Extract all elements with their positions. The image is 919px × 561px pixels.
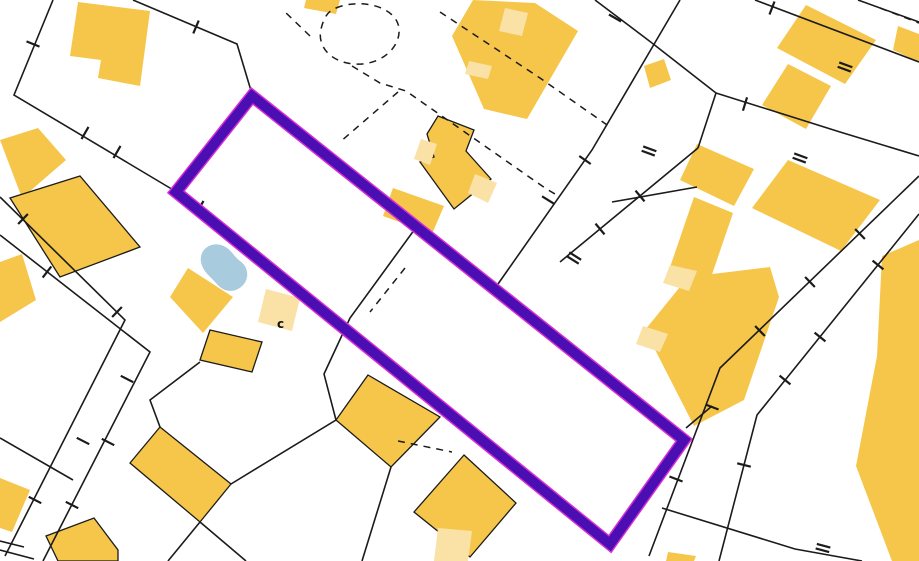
parcel-boundary-line bbox=[612, 187, 697, 202]
survey-tick bbox=[743, 97, 747, 110]
tick-stroke bbox=[780, 376, 791, 385]
tick-stroke bbox=[817, 544, 831, 548]
survey-tick bbox=[77, 438, 89, 444]
survey-tick bbox=[769, 1, 774, 14]
tick-stroke bbox=[669, 476, 682, 481]
parcel-boundary-line bbox=[362, 467, 391, 561]
map-layers bbox=[0, 0, 919, 561]
survey-double-tick bbox=[642, 146, 657, 155]
building-footprint bbox=[752, 160, 880, 251]
tick-stroke bbox=[596, 224, 605, 235]
tick-stroke bbox=[77, 438, 89, 444]
tick-stroke bbox=[642, 151, 655, 156]
survey-tick bbox=[815, 333, 826, 342]
tick-stroke bbox=[542, 196, 554, 203]
tick-stroke bbox=[579, 156, 590, 164]
building-footprint bbox=[200, 330, 262, 372]
building-footprint bbox=[46, 518, 118, 561]
survey-tick bbox=[542, 196, 554, 203]
survey-tick bbox=[669, 476, 682, 481]
cadastral-map: c bbox=[0, 0, 919, 561]
tick-stroke bbox=[43, 266, 52, 277]
parcel-boundary-line bbox=[662, 508, 862, 561]
survey-tick bbox=[596, 224, 605, 235]
survey-tick bbox=[43, 266, 52, 277]
tick-stroke bbox=[793, 158, 806, 163]
parcel-boundary-line bbox=[168, 522, 200, 561]
tick-stroke bbox=[794, 153, 807, 158]
building-footprint bbox=[666, 552, 696, 561]
tick-stroke bbox=[769, 1, 774, 14]
building-footprint bbox=[70, 2, 150, 86]
parcel-boundary-line bbox=[133, 0, 252, 94]
parcel-boundary-line bbox=[698, 93, 716, 148]
building-footprint bbox=[856, 240, 919, 561]
parcel-boundary-line bbox=[200, 522, 246, 561]
survey-tick bbox=[780, 376, 791, 385]
building-footprint bbox=[644, 59, 671, 88]
building-footprint bbox=[130, 427, 231, 522]
dashed-boundary-line bbox=[370, 268, 405, 312]
survey-double-tick bbox=[816, 544, 831, 552]
building-annex bbox=[434, 528, 472, 561]
tick-stroke bbox=[815, 333, 826, 342]
building-footprint bbox=[645, 267, 779, 426]
survey-double-tick bbox=[793, 153, 808, 162]
parcel-boundary-line bbox=[595, 0, 652, 43]
tick-stroke bbox=[743, 97, 747, 110]
survey-tick bbox=[579, 156, 590, 164]
tick-stroke bbox=[121, 376, 133, 382]
tick-stroke bbox=[816, 548, 830, 552]
map-annotation-c: c bbox=[277, 317, 284, 331]
dashed-boundary-line bbox=[283, 10, 310, 36]
building-footprint bbox=[0, 254, 36, 322]
survey-tick bbox=[27, 41, 40, 46]
building-footprint bbox=[762, 64, 831, 129]
tick-stroke bbox=[643, 146, 656, 151]
cadastral-map-canvas[interactable]: c bbox=[0, 0, 919, 561]
parcel-boundary-line bbox=[150, 362, 200, 427]
survey-tick bbox=[121, 376, 133, 382]
building-footprint bbox=[0, 478, 30, 532]
tick-stroke bbox=[27, 41, 40, 46]
dashed-boundary-line bbox=[340, 92, 398, 142]
building-footprint bbox=[304, 0, 340, 14]
